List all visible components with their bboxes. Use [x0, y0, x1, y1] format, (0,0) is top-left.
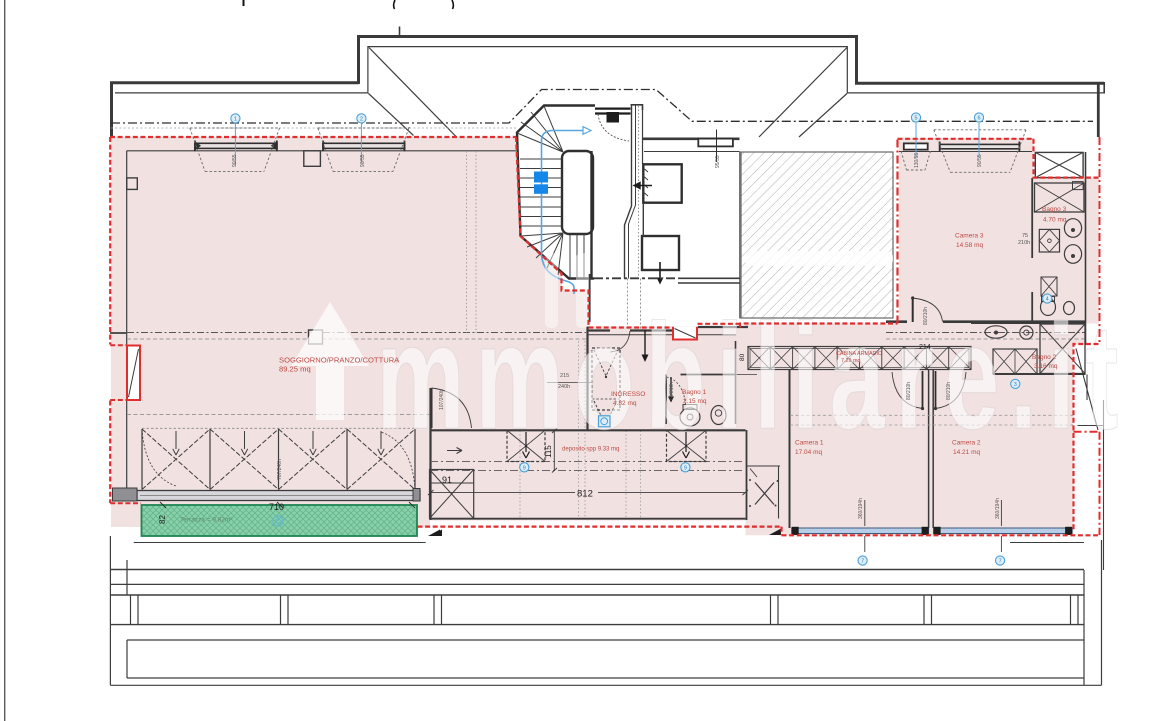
- svg-text:80/210h: 80/210h: [906, 382, 912, 400]
- svg-text:3: 3: [1014, 382, 1017, 388]
- svg-text:3.16 mq: 3.16 mq: [1034, 363, 1058, 370]
- svg-text:17.04 mq: 17.04 mq: [795, 449, 822, 456]
- svg-text:215: 215: [560, 373, 569, 379]
- svg-text:812: 812: [577, 489, 593, 500]
- svg-text:240h: 240h: [558, 384, 570, 390]
- svg-text:80/210h: 80/210h: [923, 307, 929, 325]
- svg-text:9: 9: [523, 465, 526, 471]
- svg-text:Terrazza = 9.82m²: Terrazza = 9.82m²: [180, 517, 233, 524]
- svg-text:2: 2: [360, 116, 363, 122]
- svg-text:7: 7: [861, 559, 864, 565]
- svg-text:CABINA ARMADIO: CABINA ARMADIO: [836, 351, 882, 357]
- svg-text:7.29 mq: 7.29 mq: [841, 358, 860, 364]
- svg-text:Bagno 2: Bagno 2: [1032, 354, 1057, 361]
- svg-text:4.82 mq: 4.82 mq: [613, 400, 637, 407]
- svg-text:130/55: 130/55: [914, 152, 920, 168]
- svg-text:89.25 mq: 89.25 mq: [279, 365, 311, 374]
- svg-text:4.70 mq: 4.70 mq: [1043, 217, 1067, 224]
- svg-text:Camera 2: Camera 2: [952, 440, 981, 447]
- svg-text:9: 9: [684, 465, 687, 471]
- svg-text:95/55: 95/55: [715, 155, 721, 168]
- svg-text:1: 1: [234, 116, 237, 122]
- svg-text:2.15 mq: 2.15 mq: [683, 398, 707, 405]
- svg-text:SOGGIORNO/PRANZO/COTTURA: SOGGIORNO/PRANZO/COTTURA: [279, 356, 400, 365]
- svg-text:Bagno 1: Bagno 1: [682, 389, 707, 396]
- svg-text:214: 214: [919, 344, 931, 351]
- svg-text:Camera 1: Camera 1: [795, 440, 824, 447]
- svg-text:4: 4: [1046, 297, 1049, 303]
- svg-text:7: 7: [999, 559, 1002, 565]
- svg-text:Camera 3: Camera 3: [955, 233, 984, 240]
- svg-text:210h: 210h: [1018, 240, 1030, 246]
- svg-text:80/210h: 80/210h: [946, 382, 952, 400]
- svg-text:107/240h: 107/240h: [439, 389, 445, 410]
- svg-text:360/194h: 360/194h: [858, 498, 864, 519]
- svg-text:INGRESSO: INGRESSO: [611, 391, 645, 398]
- svg-text:90/55: 90/55: [360, 154, 366, 167]
- svg-text:82: 82: [158, 515, 167, 524]
- svg-text:75: 75: [1022, 233, 1028, 239]
- svg-text:6: 6: [977, 116, 980, 122]
- svg-text:14.58 mq: 14.58 mq: [956, 242, 983, 249]
- svg-text:14.21 mq: 14.21 mq: [953, 449, 980, 456]
- svg-text:deposito spp 9.33 mq: deposito spp 9.33 mq: [562, 447, 619, 453]
- svg-text:90/55: 90/55: [977, 154, 983, 167]
- svg-text:90/55: 90/55: [232, 154, 238, 167]
- svg-text:80: 80: [739, 353, 746, 361]
- svg-text:Bagno 3: Bagno 3: [1042, 206, 1067, 213]
- svg-text:707/240h: 707/240h: [277, 459, 283, 480]
- svg-text:710: 710: [269, 502, 284, 512]
- svg-text:91: 91: [442, 475, 452, 485]
- svg-text:60/210h: 60/210h: [669, 382, 675, 400]
- svg-text:360/194h: 360/194h: [995, 498, 1001, 519]
- svg-text:mmobiliare.it: mmobiliare.it: [376, 294, 1128, 461]
- svg-text:5: 5: [914, 116, 917, 122]
- svg-text:115: 115: [544, 445, 553, 458]
